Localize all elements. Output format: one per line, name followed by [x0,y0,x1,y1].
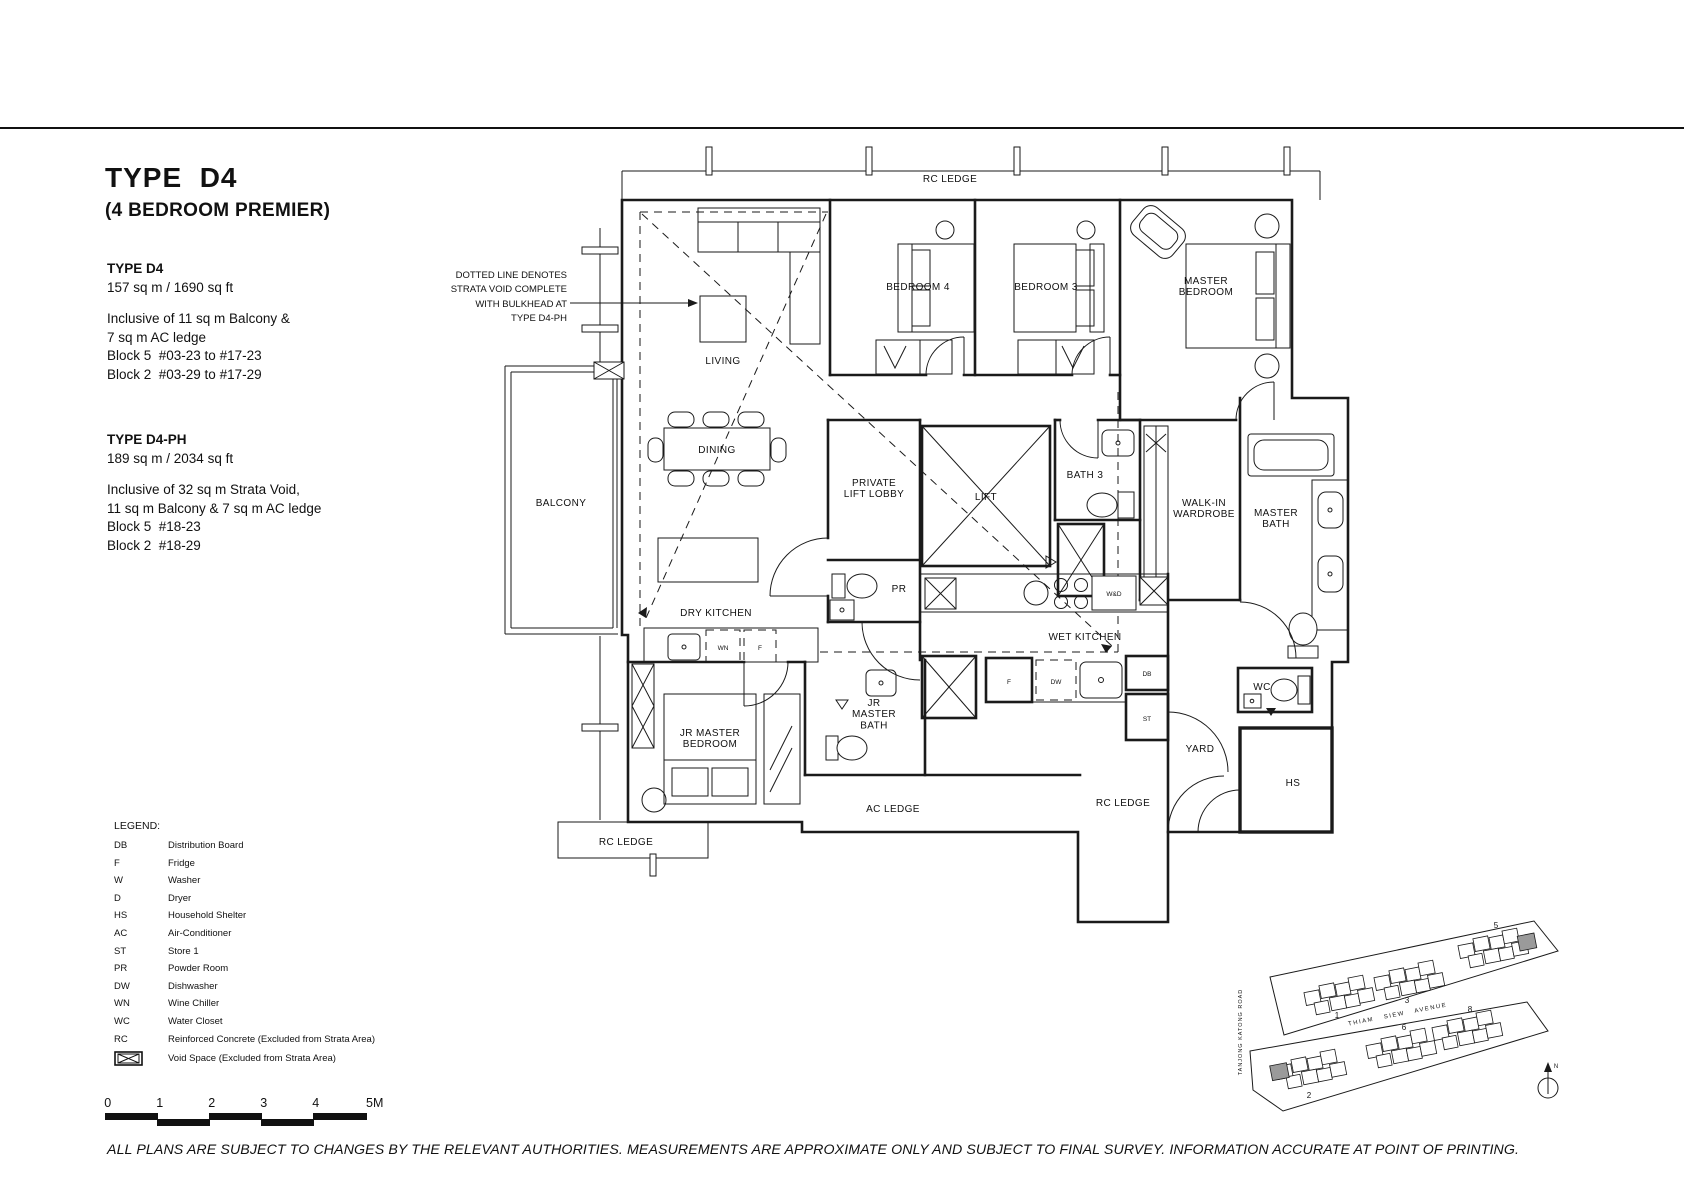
legend-desc: Dishwasher [168,981,218,992]
dry-kitchen: WN F DRY KITCHEN [644,538,818,662]
master-bath-label: MASTERBATH [1254,508,1298,530]
water-closet: WC [1238,668,1312,716]
rc-ledge-top: RC LEDGE [622,147,1320,200]
legend-row: ACAir-Conditioner [114,926,534,944]
legend-abbr: RC [114,1034,128,1045]
walk-in-wardrobe: WALK-INWARDROBE [1140,398,1240,600]
legend-desc: Washer [168,875,200,886]
walk-in-wardrobe-label: WALK-INWARDROBE [1173,498,1235,520]
legend-desc: Wine Chiller [168,998,219,1009]
dining-label: DINING [698,445,735,456]
scale-bar: 0 1 2 3 4 5M [105,1096,405,1129]
tanjong-katong-road-label: TANJONG KATONG ROAD [1238,989,1244,1076]
spec-area: 189 sq m / 2034 sq ft [107,450,407,469]
master-bath: MASTERBATH [1240,434,1348,658]
scale-tick-label: 1 [156,1096,163,1110]
lift-label: LIFT [975,492,997,503]
jr-master-bedroom-label: JR MASTERBEDROOM [680,728,740,750]
bedroom-walls [830,200,1274,420]
dining-area: DINING [648,412,786,486]
lift: LIFT [922,426,1050,566]
rc-ledge-top-label: RC LEDGE [923,174,977,185]
ledge-tick [706,147,712,175]
hs-label: HS [1286,778,1301,789]
legend-abbr: PR [114,963,127,974]
legend-row: DWDishwasher [114,979,534,997]
bedroom4-label: BEDROOM 4 [886,282,950,293]
scale-tick-label: 4 [312,1096,319,1110]
pr-label: PR [892,584,907,595]
legend: LEGEND: DBDistribution Board FFridge WWa… [114,820,534,1069]
legend-void-row: Void Space (Excluded from Strata Area) [114,1051,534,1069]
wet-kitchen-counter: F DW DB ST [922,656,1168,740]
private-lift-lobby: PRIVATELIFT LOBBY [770,420,920,660]
f-wet-label: F [1007,679,1011,686]
yard-label: YARD [1186,744,1215,755]
spec-heading: TYPE D4 [107,260,407,279]
legend-row: RCReinforced Concrete (Excluded from Str… [114,1032,534,1050]
bath3: BATH 3 [1046,420,1140,600]
disclaimer-text: ALL PLANS ARE SUBJECT TO CHANGES BY THE … [107,1142,1567,1158]
legend-desc: Reinforced Concrete (Excluded from Strat… [168,1034,375,1045]
floor-plan-drawing: RC LEDGE RC LEDGE BALCONY [480,130,1600,1130]
jr-master-bedroom: JR MASTERBEDROOM [628,662,805,812]
highlighted-unit [1517,933,1537,951]
scale-strip [105,1113,367,1129]
site-plan: THIAM SIEW AVENUE TANJONG KATONG ROAD 1 … [1238,921,1558,1111]
block-number: 8 [1468,1005,1473,1014]
scale-tick-label: 3 [260,1096,267,1110]
bedroom3-label: BEDROOM 3 [1014,282,1078,293]
balcony-label: BALCONY [536,498,587,509]
legend-row: STStore 1 [114,944,534,962]
ledge-tick [866,147,872,175]
page-subtitle: (4 BEDROOM PREMIER) [105,200,330,222]
left-structure: RC LEDGE [558,228,708,876]
bedroom4: BEDROOM 4 [876,221,974,374]
legend-desc: Household Shelter [168,910,246,921]
top-rule [0,127,1684,129]
spec-area: 157 sq m / 1690 sq ft [107,279,407,298]
spec-line: Block 2 #18-29 [107,537,407,556]
block-number: 2 [1307,1091,1312,1100]
wn-label: WN [718,645,729,652]
legend-row: WWasher [114,873,534,891]
bath3-label: BATH 3 [1067,470,1104,481]
spec-line: Block 2 #03-29 to #17-29 [107,366,407,385]
block-number: 1 [1335,1011,1340,1020]
scale-labels: 0 1 2 3 4 5M [105,1096,405,1111]
legend-desc: Fridge [168,858,195,869]
ledge-tick [1014,147,1020,175]
ac-ledge-label: AC LEDGE [866,804,920,815]
legend-row: PRPowder Room [114,961,534,979]
wd-label: W&D [1106,591,1121,598]
scale-tick-label: 0 [104,1096,111,1110]
jr-master-bath-label: JRMASTERBATH [852,698,896,731]
wet-kitchen: W&D WET KITCHEN [862,574,1228,832]
legend-desc: Distribution Board [168,840,244,851]
legend-row: HSHousehold Shelter [114,908,534,926]
legend-row: DBDistribution Board [114,838,534,856]
north-arrow-icon: N [1538,1062,1558,1098]
legend-abbr: F [114,858,120,869]
spec-line: 11 sq m Balcony & 7 sq m AC ledge [107,500,407,519]
wc-label: WC [1253,682,1270,693]
legend-row: WNWine Chiller [114,996,534,1014]
master-bedroom-label: MASTERBEDROOM [1179,276,1233,298]
void-space-strip [632,664,654,748]
living-room: LIVING [698,208,820,367]
void-space-icon [114,1051,144,1067]
legend-row: WCWater Closet [114,1014,534,1032]
db-label: DB [1142,671,1151,678]
legend-abbr: HS [114,910,127,921]
block-number: 6 [1402,1023,1407,1032]
legend-abbr: DW [114,981,130,992]
legend-abbr: W [114,875,123,886]
legend-abbr: ST [114,946,126,957]
legend-abbr: WC [114,1016,130,1027]
floorplan-page: TYPE D4 (4 BEDROOM PREMIER) TYPE D4 157 … [0,0,1684,1190]
legend-desc: Air-Conditioner [168,928,231,939]
spec-line: Block 5 #18-23 [107,518,407,537]
dw-label: DW [1051,679,1063,686]
legend-desc: Water Closet [168,1016,223,1027]
spec-heading: TYPE D4-PH [107,431,407,450]
st-label: ST [1143,716,1151,723]
legend-desc: Dryer [168,893,191,904]
household-shelter: HS [1198,728,1332,832]
legend-row: DDryer [114,891,534,909]
spec-line: Block 5 #03-23 to #17-23 [107,347,407,366]
legend-title: LEGEND: [114,820,534,832]
spec-type-d4-ph: TYPE D4-PH 189 sq m / 2034 sq ft Inclusi… [107,431,407,555]
rc-ledge-left-label: RC LEDGE [599,837,653,848]
balcony: BALCONY [505,362,624,634]
legend-desc: Void Space (Excluded from Strata Area) [168,1053,336,1064]
note-leader-line [570,299,698,307]
master-bedroom: MASTERBEDROOM [1127,201,1290,378]
legend-row: FFridge [114,856,534,874]
scale-tick-label: 5M [366,1096,383,1110]
living-label: LIVING [705,356,740,367]
ledge-tick [1162,147,1168,175]
scale-tick-label: 2 [208,1096,215,1110]
block-number: 5 [1494,921,1499,930]
spec-type-d4: TYPE D4 157 sq m / 1690 sq ft Inclusive … [107,260,407,384]
bedroom3: BEDROOM 3 [1014,221,1104,374]
legend-abbr: DB [114,840,127,851]
dry-kitchen-label: DRY KITCHEN [680,608,752,619]
powder-room: PR [830,574,906,620]
spec-line: Inclusive of 32 sq m Strata Void, [107,481,407,500]
spec-line: Inclusive of 11 sq m Balcony & [107,310,407,329]
legend-abbr: D [114,893,121,904]
block-number: 3 [1405,996,1410,1005]
wet-kitchen-label: WET KITCHEN [1048,632,1121,643]
legend-abbr: WN [114,998,130,1009]
void-space-marker [594,362,624,379]
private-lift-lobby-label: PRIVATELIFT LOBBY [844,478,905,500]
f-dry-label: F [758,645,762,652]
north-label: N [1554,1064,1558,1070]
legend-abbr: AC [114,928,127,939]
legend-desc: Store 1 [168,946,199,957]
rc-ledge-bottom-label: RC LEDGE [1096,798,1150,809]
legend-desc: Powder Room [168,963,228,974]
ledge-tick [1284,147,1290,175]
page-title: TYPE D4 [105,162,237,194]
highlighted-unit [1270,1063,1290,1081]
spec-line: 7 sq m AC ledge [107,329,407,348]
